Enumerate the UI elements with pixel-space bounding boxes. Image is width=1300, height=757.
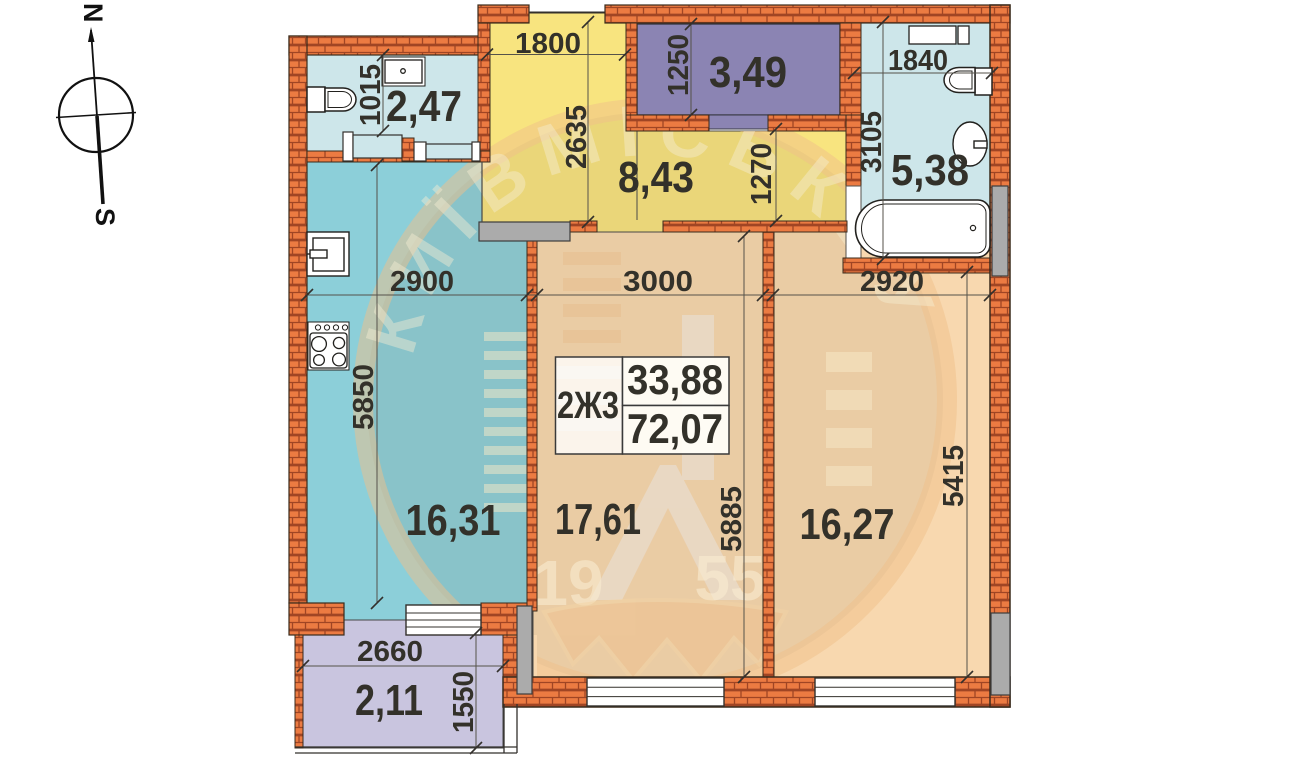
svg-text:5,38: 5,38 [891, 146, 969, 195]
svg-text:1840: 1840 [888, 45, 948, 77]
svg-text:1270: 1270 [746, 143, 778, 205]
svg-text:16,31: 16,31 [406, 496, 501, 545]
svg-text:S: S [90, 208, 120, 226]
svg-text:2,11: 2,11 [355, 676, 423, 725]
svg-text:5885: 5885 [716, 486, 748, 552]
svg-text:33,88: 33,88 [627, 356, 723, 403]
svg-text:2,47: 2,47 [386, 82, 462, 131]
svg-text:1015: 1015 [355, 64, 387, 126]
svg-text:1550: 1550 [448, 671, 480, 733]
svg-text:3000: 3000 [623, 266, 693, 298]
svg-text:17,61: 17,61 [555, 495, 641, 544]
svg-text:3105: 3105 [856, 111, 888, 173]
svg-text:1800: 1800 [515, 28, 581, 60]
svg-text:16,27: 16,27 [800, 500, 895, 549]
svg-text:72,07: 72,07 [627, 405, 723, 452]
svg-text:1250: 1250 [663, 34, 695, 96]
svg-text:5850: 5850 [348, 364, 380, 430]
svg-text:3,49: 3,49 [709, 48, 787, 97]
svg-text:5415: 5415 [938, 445, 970, 507]
svg-text:N: N [78, 3, 108, 23]
svg-text:2920: 2920 [860, 266, 924, 298]
svg-text:2635: 2635 [561, 105, 593, 169]
svg-text:2660: 2660 [357, 636, 423, 668]
svg-text:8,43: 8,43 [618, 153, 694, 202]
svg-text:2Ж3: 2Ж3 [557, 385, 619, 427]
svg-text:2900: 2900 [390, 266, 454, 298]
